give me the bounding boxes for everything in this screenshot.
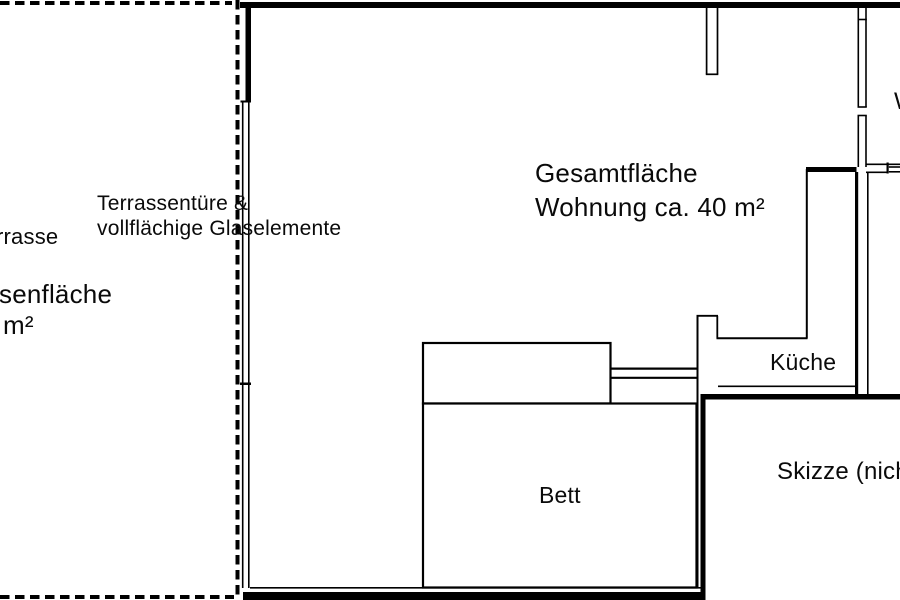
glass-wall-joint-mid — [240, 383, 251, 386]
terrace-area-label-partial-line2: m² — [3, 312, 34, 338]
top-wall-stub — [706, 8, 719, 74]
terrace-area-label-partial-line1: senfläche — [0, 281, 112, 307]
bed-headboard-rect — [423, 343, 611, 404]
right-interior-wall-upper — [858, 8, 868, 394]
floor-plan: Gesamtfläche Wohnung ca. 40 m² Terrassen… — [0, 0, 900, 600]
left-wall-thick-segment — [246, 2, 252, 102]
right-doorway — [866, 163, 900, 174]
bottom-wall — [243, 592, 705, 600]
wall-below-kitchen — [701, 394, 900, 400]
terrace-label-partial: rrasse — [0, 226, 58, 248]
kitchen-outline — [697, 169, 857, 588]
bed-furniture — [423, 343, 697, 588]
glass-wall-joint-top — [241, 101, 252, 103]
total-area-line1: Gesamtfläche — [535, 156, 765, 190]
bed-label: Bett — [539, 484, 581, 507]
lower-right-vertical-wall — [701, 394, 706, 600]
total-area-label: Gesamtfläche Wohnung ca. 40 m² — [535, 156, 765, 224]
terrace-door-line1: Terrassentüre & — [97, 192, 341, 217]
top-wall — [240, 2, 900, 8]
terrace-door-line2: vollflächige Glaselemente — [97, 217, 341, 242]
terrace-door-label: Terrassentüre & vollflächige Glaselement… — [97, 192, 341, 241]
wall-segment-above-kitchen — [806, 167, 857, 172]
right-interior-wall-lower-thick — [855, 172, 858, 394]
total-area-line2: Wohnung ca. 40 m² — [535, 190, 765, 224]
floor-plan-drawing — [0, 0, 900, 600]
kitchen-label: Küche — [770, 351, 836, 374]
sketch-note-label-partial: Skizze (nich — [777, 460, 900, 484]
right-room-label-partial: W — [894, 90, 900, 114]
